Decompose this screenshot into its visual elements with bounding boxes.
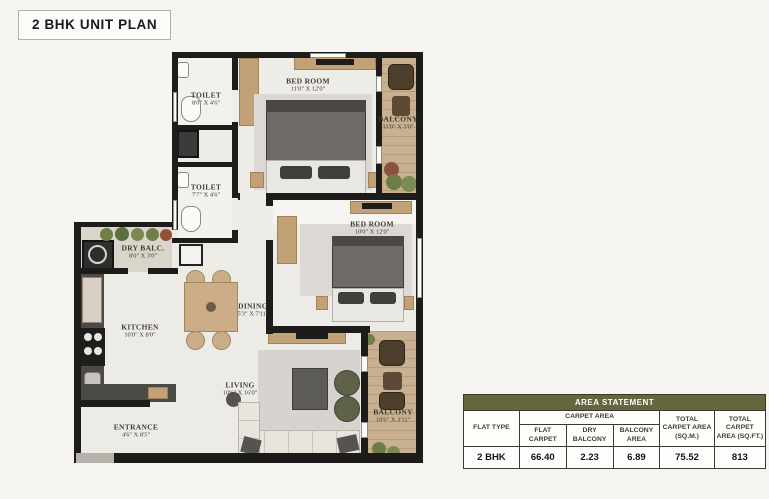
table-row: FLAT TYPE CARPET AREA TOTAL CARPET AREA …: [464, 411, 766, 425]
cell-total-sqm: 75.52: [660, 447, 714, 469]
fridge-icon: [82, 277, 102, 323]
door-opening: [266, 206, 273, 240]
dining-chair-icon: [186, 331, 205, 350]
balcony-chair-icon: [388, 64, 414, 90]
room-name: BALCONY: [378, 115, 418, 124]
header-dry-balcony: DRY BALCONY: [566, 424, 613, 447]
header-total-sqft: TOTAL CARPET AREA (SQ.FT.): [714, 411, 765, 447]
wall: [74, 453, 423, 463]
room-name: KITCHEN: [121, 323, 159, 332]
bed-headboard: [332, 236, 404, 246]
pillow: [370, 292, 396, 304]
room-dims: 4'6" X 8'5": [114, 432, 159, 440]
plant-icon: [115, 227, 129, 241]
room-name: ENTRANCE: [114, 423, 159, 432]
wall: [74, 222, 178, 227]
sliding-door: [361, 356, 368, 372]
wall: [74, 400, 150, 407]
wall: [266, 326, 370, 333]
cell-balcony-area: 6.89: [613, 447, 660, 469]
plan-title-box: 2 BHK UNIT PLAN: [18, 10, 171, 40]
cell-flat-carpet: 66.40: [519, 447, 566, 469]
wall: [74, 268, 128, 274]
room-dims: 8'0" X 4'6": [191, 100, 221, 108]
header-total-sqm: TOTAL CARPET AREA (SQ.M.): [660, 411, 714, 447]
plant-icon: [160, 229, 172, 241]
room-dims: 7'7" X 4'6": [191, 192, 221, 200]
plant-icon: [386, 174, 402, 190]
window: [310, 53, 346, 58]
area-table-grid: FLAT TYPE CARPET AREA TOTAL CARPET AREA …: [463, 410, 766, 469]
side-table: [250, 172, 264, 188]
cell-flat-type: 2 BHK: [464, 447, 520, 469]
room-label-dining: DINING 5'3" X 7'11": [237, 302, 268, 319]
stove-burner: [94, 333, 102, 341]
room-label-dry-balcony: DRY BALC. 8'0" X 3'0": [122, 244, 165, 261]
side-table: [404, 296, 414, 310]
stove-burner: [84, 347, 92, 355]
room-name: BED ROOM: [350, 220, 394, 229]
header-balcony-area: BALCONY AREA: [613, 424, 660, 447]
room-dims: 11'0" X 3'0": [378, 124, 418, 132]
dining-table-centerpiece: [206, 302, 216, 312]
room-dims: 10'0" X 8'0": [121, 332, 159, 340]
entrance-door-threshold: [76, 453, 114, 463]
wall: [148, 268, 178, 274]
sliding-door: [376, 146, 382, 164]
sliding-door: [361, 422, 368, 438]
window: [173, 200, 177, 230]
room-dims: 11'0" X 12'0": [286, 86, 330, 94]
dining-chair-icon: [212, 331, 231, 350]
tv-icon: [296, 333, 328, 339]
window: [173, 92, 177, 122]
table-row: 2 BHK 66.40 2.23 6.89 75.52 813: [464, 447, 766, 469]
balcony-table-icon: [392, 96, 410, 116]
room-label-toilet-2: TOILET 7'7" X 4'6": [191, 183, 221, 200]
area-statement-title: AREA STATEMENT: [463, 394, 766, 410]
room-label-kitchen: KITCHEN 10'0" X 8'0": [121, 323, 159, 340]
duct-shaft: [177, 130, 199, 158]
room-name: TOILET: [191, 91, 221, 100]
sliding-door: [376, 76, 382, 92]
door-opening: [232, 198, 238, 230]
room-dims: 5'3" X 7'11": [237, 311, 268, 319]
header-flat-type: FLAT TYPE: [464, 411, 520, 447]
toilet-wc-icon: [181, 206, 201, 232]
header-carpet-area: CARPET AREA: [519, 411, 660, 425]
plant-icon: [401, 176, 417, 192]
room-label-bedroom-1: BED ROOM 11'0" X 12'0": [286, 77, 330, 94]
stove-burner: [94, 347, 102, 355]
pouf-icon: [334, 396, 360, 422]
room-dims: 10'6" X 16'0": [223, 390, 258, 398]
room-dims: 10'6" X 3'11": [373, 417, 413, 425]
tv-icon: [316, 59, 354, 65]
door-opening: [240, 193, 266, 200]
window: [417, 238, 422, 298]
wall: [172, 52, 423, 58]
floor-hallway: [238, 196, 268, 276]
plan-title: 2 BHK UNIT PLAN: [32, 17, 157, 32]
wardrobe: [277, 216, 297, 264]
bed-headboard: [266, 100, 366, 112]
plant-icon: [100, 228, 113, 241]
room-name: LIVING: [223, 381, 258, 390]
stove-burner: [84, 333, 92, 341]
sink-icon: [177, 172, 189, 188]
cell-dry-balcony: 2.23: [566, 447, 613, 469]
wall: [74, 222, 81, 463]
door-opening: [232, 90, 238, 122]
room-label-balcony-1: BALCONY 11'0" X 3'0": [378, 115, 418, 132]
room-name: DINING: [237, 302, 268, 311]
room-label-living: LIVING 10'6" X 16'0": [223, 381, 258, 398]
room-label-entrance: ENTRANCE 4'6" X 8'5": [114, 423, 159, 440]
room-label-balcony-2: BALCONY 10'6" X 3'11": [373, 408, 413, 425]
room-dims: 8'0" X 3'0": [122, 253, 165, 261]
pouf-icon: [334, 370, 360, 396]
wall: [172, 162, 238, 167]
sink-icon: [177, 62, 189, 78]
cutting-board: [148, 387, 168, 399]
area-statement-table: AREA STATEMENT FLAT TYPE CARPET AREA TOT…: [463, 394, 766, 469]
pillow: [338, 292, 364, 304]
plant-icon: [146, 228, 159, 241]
side-table: [316, 296, 328, 310]
washing-machine-drum: [88, 245, 107, 264]
coffee-table-icon: [292, 368, 328, 410]
wall: [172, 238, 238, 243]
room-name: DRY BALC.: [122, 244, 165, 253]
room-label-toilet-1: TOILET 8'0" X 4'6": [191, 91, 221, 108]
wall: [172, 125, 238, 130]
room-name: BALCONY: [373, 408, 413, 417]
balcony-table-icon: [383, 372, 402, 390]
balcony-chair-icon: [379, 340, 405, 366]
plant-icon: [131, 228, 144, 241]
cell-total-sqft: 813: [714, 447, 765, 469]
room-name: BED ROOM: [286, 77, 330, 86]
room-name: TOILET: [191, 183, 221, 192]
duct-shaft: [179, 244, 203, 266]
pillow: [280, 166, 312, 179]
room-label-bedroom-2: BED ROOM 10'0" X 12'0": [350, 220, 394, 237]
pillow: [318, 166, 350, 179]
tv-icon: [362, 203, 392, 209]
room-dims: 10'0" X 12'0": [350, 229, 394, 237]
header-flat-carpet: FLAT CARPET: [519, 424, 566, 447]
